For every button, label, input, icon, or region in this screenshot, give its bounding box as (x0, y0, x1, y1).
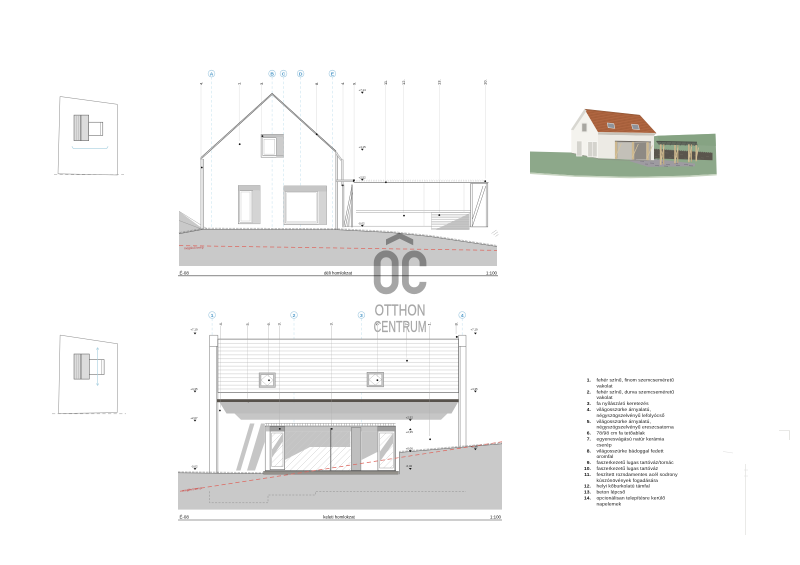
svg-text:13.: 13. (584, 490, 592, 496)
svg-text:faszerkezetű lugas tartóváz: faszerkezetű lugas tartóváz (597, 466, 659, 472)
svg-text:4.: 4. (218, 322, 223, 325)
svg-text:3: 3 (360, 313, 363, 319)
svg-text:fehér színű, finom szemcsemére: fehér színű, finom szemcseméretű (597, 378, 675, 384)
svg-text:beton lépcső: beton lépcső (597, 490, 626, 496)
svg-text:12.: 12. (401, 79, 406, 85)
svg-text:4.: 4. (340, 82, 345, 85)
svg-text:14.: 14. (584, 496, 592, 502)
svg-text:10.: 10. (483, 79, 488, 85)
svg-text:fehér színű, durva szemcsemére: fehér színű, durva szemcseméretű (597, 389, 675, 395)
svg-text:8.: 8. (587, 448, 592, 454)
svg-text:feszített rozsdamentes acél so: feszített rozsdamentes acél sodrony (597, 472, 679, 478)
svg-text:1.: 1. (587, 378, 592, 384)
svg-text:OTTHON: OTTHON (375, 303, 426, 320)
svg-text:7.: 7. (404, 322, 409, 325)
svg-text:-0,02: -0,02 (358, 221, 365, 225)
svg-text:-0,02: -0,02 (191, 464, 198, 468)
svg-text:opcionálisan telepítésre kerül: opcionálisan telepítésre kerülő (597, 496, 666, 502)
svg-text:+1,38: +1,38 (471, 445, 479, 449)
svg-text:1.: 1. (427, 322, 432, 325)
svg-text:3.: 3. (587, 401, 592, 407)
svg-text:13.: 13. (437, 79, 442, 85)
svg-text:12.: 12. (584, 484, 592, 490)
svg-text:oromfal: oromfal (597, 454, 614, 460)
svg-text:3.: 3. (329, 322, 334, 325)
svg-text:1.: 1. (236, 82, 241, 85)
svg-text:déli homlokzat: déli homlokzat (324, 270, 353, 275)
svg-text:vakolat: vakolat (597, 395, 614, 401)
svg-text:8.: 8. (453, 322, 458, 325)
svg-text:2: 2 (293, 313, 296, 319)
svg-text:5.: 5. (245, 322, 250, 325)
svg-text:faszerkezetű lugas tartóváz/to: faszerkezetű lugas tartóváz/tornác (597, 460, 675, 466)
svg-text:C: C (282, 71, 286, 77)
svg-text:1:100: 1:100 (486, 270, 498, 275)
svg-text:9.: 9. (587, 460, 592, 466)
svg-text:5.: 5. (587, 419, 592, 425)
svg-text:É-08: É-08 (180, 270, 190, 275)
svg-text:+7,19: +7,19 (471, 328, 479, 332)
svg-text:napelemek: napelemek (597, 501, 622, 507)
svg-text:világosszürke bádoggal fedett: világosszürke bádoggal fedett (597, 448, 665, 454)
svg-text:4.: 4. (198, 82, 203, 85)
svg-text:világosszürke árnyalatú,: világosszürke árnyalatú, (597, 407, 651, 413)
svg-text:+7,19: +7,19 (190, 328, 198, 332)
svg-text:B: B (270, 71, 274, 77)
svg-text:10.: 10. (584, 466, 592, 472)
svg-text:+4,35: +4,35 (471, 387, 479, 391)
svg-text:1: 1 (211, 313, 214, 319)
svg-text:+2,52: +2,52 (359, 175, 367, 179)
svg-text:+4,15: +4,15 (359, 145, 367, 149)
svg-text:4: 4 (461, 313, 464, 319)
svg-text:11.: 11. (584, 472, 591, 478)
svg-text:6.: 6. (375, 322, 380, 325)
svg-text:cserép: cserép (597, 442, 612, 448)
svg-text:11.: 11. (383, 80, 388, 85)
svg-text:kúszónövények fogadására: kúszónövények fogadására (597, 478, 659, 484)
svg-text:fa nyílászáró keretezés: fa nyílászáró keretezés (597, 401, 650, 407)
svg-text:6.: 6. (587, 431, 592, 437)
svg-text:A: A (210, 71, 214, 77)
svg-text:CENTRUM: CENTRUM (374, 319, 427, 336)
svg-text:1:100: 1:100 (490, 515, 502, 520)
svg-text:-0,32: -0,32 (406, 464, 413, 468)
svg-text:helyi kőburkolatú támfal: helyi kőburkolatú támfal (597, 484, 650, 490)
svg-text:vakolat: vakolat (597, 383, 614, 389)
svg-text:négyszögszelvényű lefolyócső: négyszögszelvényű lefolyócső (597, 413, 665, 419)
svg-text:+0,06: +0,06 (406, 446, 414, 450)
svg-text:É-08: É-08 (180, 515, 190, 520)
svg-text:keleti homlokzat: keleti homlokzat (323, 515, 355, 520)
svg-text:2.: 2. (587, 389, 592, 395)
svg-text:9.: 9. (351, 82, 356, 85)
svg-text:+2,07: +2,07 (190, 416, 198, 420)
svg-text:7.: 7. (587, 437, 592, 443)
svg-text:8.: 8. (314, 82, 319, 85)
svg-text:3.: 3. (277, 322, 282, 325)
svg-text:négyszögszelvényű ereszcsatorn: négyszögszelvényű ereszcsatorna (597, 425, 674, 431)
svg-text:6.: 6. (266, 322, 271, 325)
svg-text:egyenesvágású natúr kerámia: egyenesvágású natúr kerámia (597, 437, 665, 443)
svg-text:3.: 3. (259, 82, 264, 85)
svg-text:+2,35: +2,35 (406, 430, 414, 434)
svg-text:+2,52: +2,52 (406, 415, 414, 419)
svg-text:78/98 cm fa tetőablak: 78/98 cm fa tetőablak (597, 431, 646, 437)
svg-text:D: D (299, 71, 303, 77)
svg-text:+7,14: +7,14 (359, 88, 367, 92)
svg-text:4.: 4. (587, 407, 592, 413)
svg-text:világosszürke árnyalatú,: világosszürke árnyalatú, (597, 419, 651, 425)
svg-text:+4,35: +4,35 (190, 387, 198, 391)
